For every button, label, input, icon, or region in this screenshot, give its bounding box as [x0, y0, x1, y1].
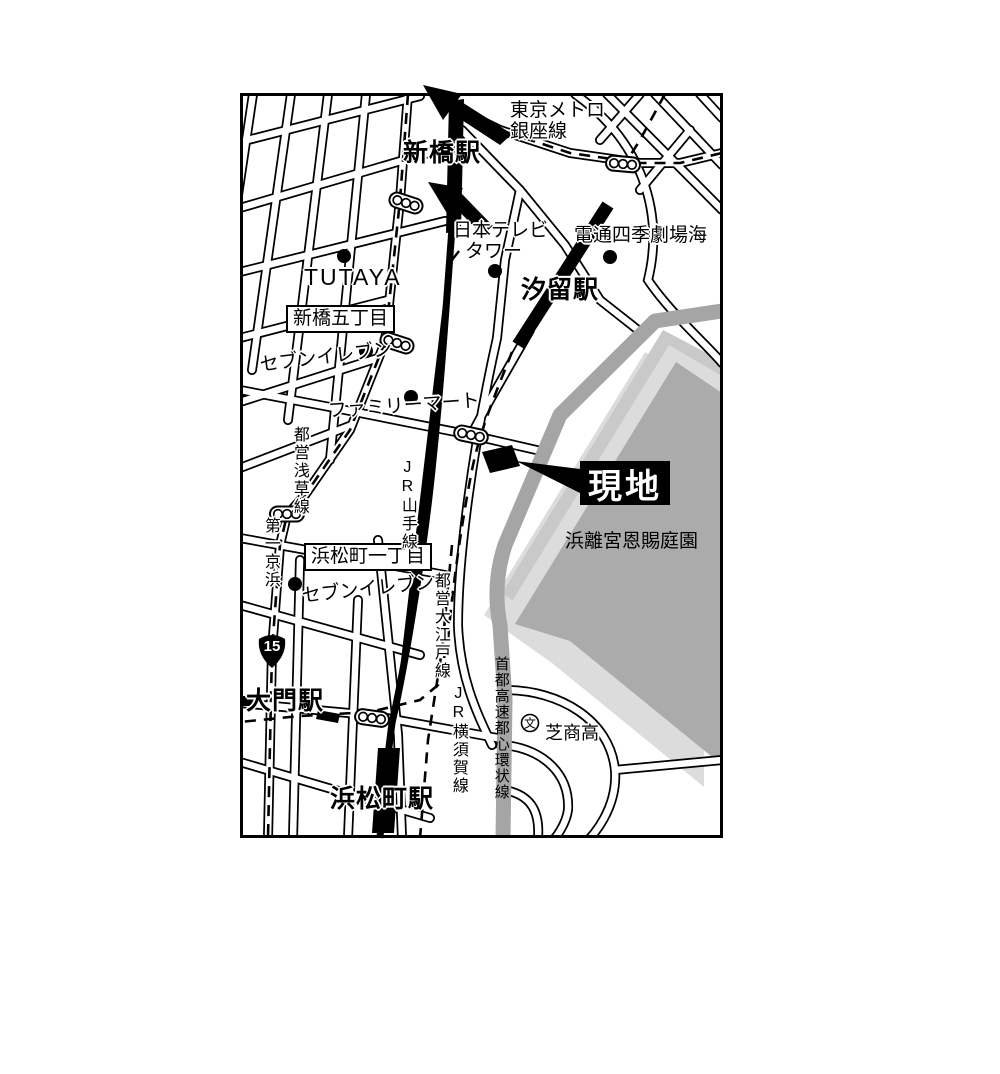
- area-map: 15 文 新橋駅 東京メトロ 銀座線 TUTAYA 日本テレビ タワー 電通四季…: [240, 93, 723, 838]
- rail-label-ginza: 東京メトロ 銀座線: [510, 100, 605, 143]
- route-15-badge: 15: [259, 635, 285, 668]
- nittele-dot: [488, 264, 502, 278]
- school-symbol-icon: 文: [522, 715, 539, 732]
- dentsu-dot: [603, 250, 617, 264]
- station-label-hamamatsucho: 浜松町駅: [330, 785, 434, 813]
- poi-label-dentsu: 電通四季劇場海: [574, 225, 707, 246]
- seven-eleven-south-dot: [288, 577, 302, 591]
- page: { "map": { "stations": { "shimbashi": "新…: [0, 0, 1000, 1074]
- hamarikyu-park: [484, 330, 722, 787]
- poi-label-nittele-line2: タワー: [453, 241, 548, 262]
- poi-label-tsutaya: TUTAYA: [304, 265, 402, 291]
- area-label-park: 浜離宮恩賜庭園: [565, 531, 698, 552]
- station-label-daimon: 大門駅: [246, 687, 324, 715]
- traffic-light-icon: [605, 155, 640, 173]
- route-15-number: 15: [264, 638, 281, 655]
- school-symbol-text: 文: [524, 716, 536, 731]
- rail-label-ginza-line2: 銀座線: [510, 121, 605, 142]
- rail-label-oedo: 都営大江戸線: [431, 572, 449, 680]
- site-label: 現地: [580, 461, 670, 505]
- station-label-shimbashi: 新橋駅: [403, 139, 481, 167]
- road-label-daiichi-keihin: 第一京浜: [261, 517, 279, 589]
- traffic-light-icon: [354, 708, 390, 728]
- station-label-shiodome: 汐留駅: [521, 276, 599, 304]
- poi-label-nittele: 日本テレビ タワー: [453, 220, 548, 263]
- rail-label-ginza-line1: 東京メトロ: [510, 100, 605, 121]
- traffic-light-icon: [388, 191, 425, 216]
- tsutaya-dot: [337, 249, 351, 263]
- poi-label-school: 芝商高: [545, 723, 599, 743]
- rail-label-asakusa: 都営浅草線: [290, 426, 308, 516]
- rail-label-yokosuka: JR横須賀線: [449, 685, 467, 795]
- rail-label-yamanote: JR山手線: [398, 459, 416, 551]
- asakusa-line: [268, 94, 408, 838]
- road-label-expressway: 首都高速都心環状線: [492, 656, 509, 800]
- area-label-shimbashi-5chome: 新橋五丁目: [286, 305, 395, 333]
- poi-label-nittele-line1: 日本テレビ: [453, 220, 548, 241]
